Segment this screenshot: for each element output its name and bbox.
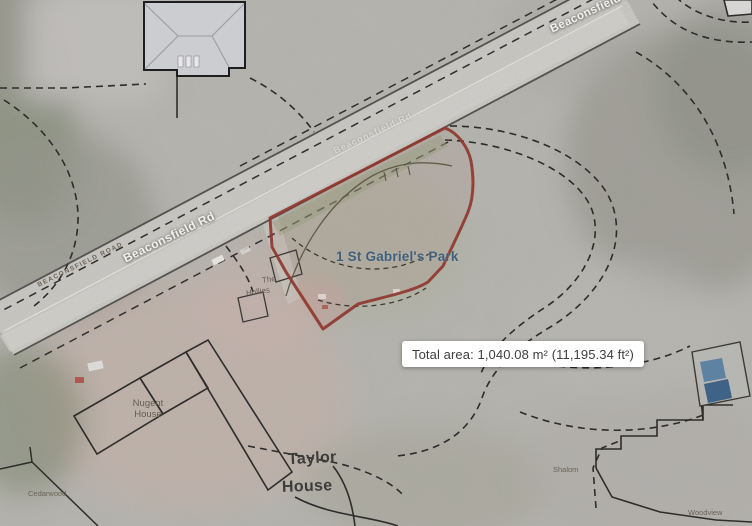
map-canvas[interactable]: Beaconsfield Rd Beaconsfield Rd BEACONSF… — [0, 0, 752, 526]
aerial-map — [0, 0, 752, 526]
building-blue-roof — [692, 342, 750, 406]
total-area-tooltip: Total area: 1,040.08 m² (11,195.34 ft²) — [402, 341, 644, 367]
building-top-left — [144, 2, 245, 76]
total-area-text: Total area: 1,040.08 m² (11,195.34 ft²) — [412, 347, 634, 362]
